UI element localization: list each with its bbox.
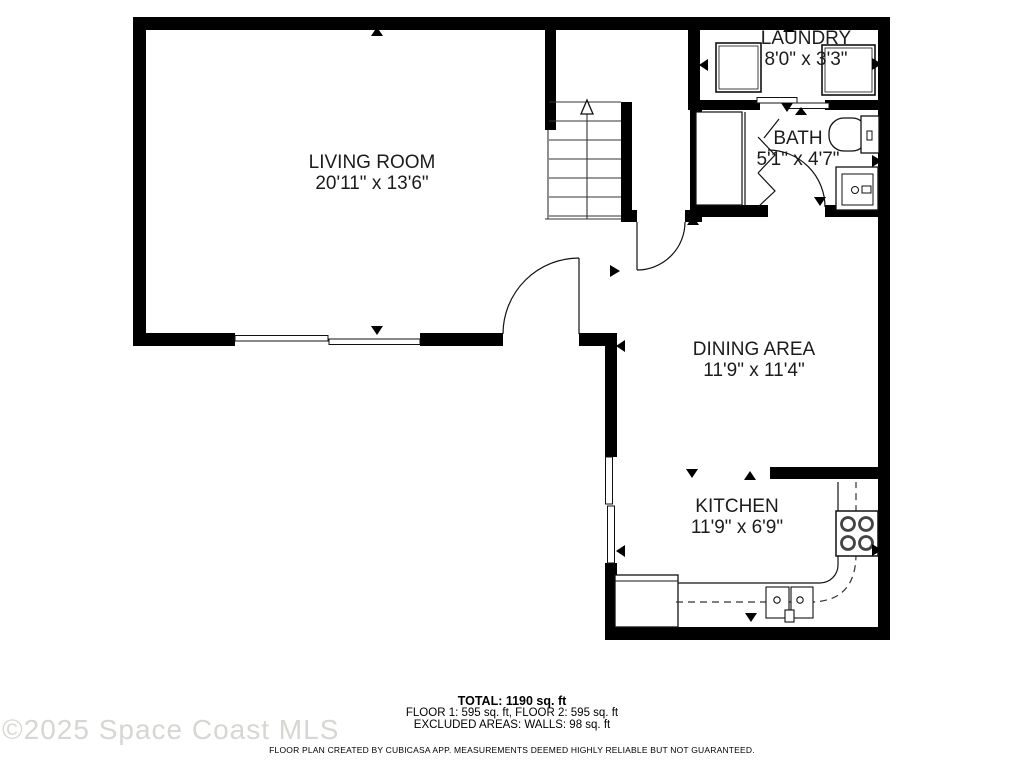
kitchen-window-icon: [608, 506, 615, 563]
living-room-bottom-wall-left: [133, 333, 235, 346]
living-room-label: LIVING ROOM 20'11" x 13'6": [309, 152, 436, 194]
room-name: LAUNDRY: [761, 28, 851, 49]
left-exterior-wall: [133, 17, 146, 346]
staircase-icon: [545, 100, 621, 219]
room-dimensions: 11'9" x 11'4": [693, 360, 815, 381]
washer-icon: [716, 43, 761, 92]
room-dimensions: 11'9" x 6'9": [691, 517, 783, 538]
hall-wall-left: [621, 210, 637, 222]
bath-bottom-wall-left: [690, 205, 768, 217]
floor-plan-page: { "floor_plan": { "rooms": [ {"id": "liv…: [0, 0, 1024, 768]
laundry-bottom-wall-left: [688, 100, 760, 110]
kitchen-label: KITCHEN 11'9" x 6'9": [691, 496, 783, 538]
living-room-bottom-wall-mid: [420, 333, 503, 346]
walls: [133, 17, 890, 640]
kitchen-window-icon: [606, 457, 613, 504]
room-dimensions: 8'0" x 3'3": [761, 49, 851, 70]
stove-icon: [836, 511, 878, 556]
mls-watermark: ©2025 Space Coast MLS: [2, 714, 339, 746]
floor-plan-drawing: [0, 0, 1024, 768]
bath-closet: [696, 112, 745, 205]
room-name: KITCHEN: [691, 496, 783, 517]
room-name: BATH: [756, 128, 839, 149]
windows: [235, 336, 615, 564]
living-room-window-icon: [235, 336, 328, 342]
stair-right-wall: [621, 102, 632, 222]
stair-left-wall: [545, 17, 556, 130]
room-name: LIVING ROOM: [309, 152, 436, 173]
room-name: DINING AREA: [693, 339, 815, 360]
room-dimensions: 20'11" x 13'6": [309, 173, 436, 194]
dining-area-label: DINING AREA 11'9" x 11'4": [693, 339, 815, 381]
kitchen-sink-icon: [766, 587, 813, 622]
front-door-swing-icon: [503, 258, 579, 334]
laundry-bottom-wall-right: [825, 100, 890, 110]
dining-left-wall: [605, 335, 617, 457]
hall-door-swing-icon: [637, 222, 685, 270]
laundry-left-wall: [688, 17, 700, 110]
room-dimensions: 5'1" x 4'7": [756, 149, 839, 170]
laundry-label: LAUNDRY 8'0" x 3'3": [761, 28, 851, 70]
total-area-text: TOTAL: 1190 sq. ft: [0, 695, 1024, 707]
bathroom-sink-icon: [836, 167, 878, 210]
right-exterior-wall: [878, 17, 890, 640]
living-room-window-icon: [329, 339, 420, 345]
kitchen-top-wall: [770, 467, 890, 479]
refrigerator-icon: [615, 575, 678, 627]
kitchen-bottom-wall: [605, 627, 890, 640]
disclaimer-text: FLOOR PLAN CREATED BY CUBICASA APP. MEAS…: [0, 745, 1024, 755]
bath-label: BATH 5'1" x 4'7": [756, 128, 839, 170]
